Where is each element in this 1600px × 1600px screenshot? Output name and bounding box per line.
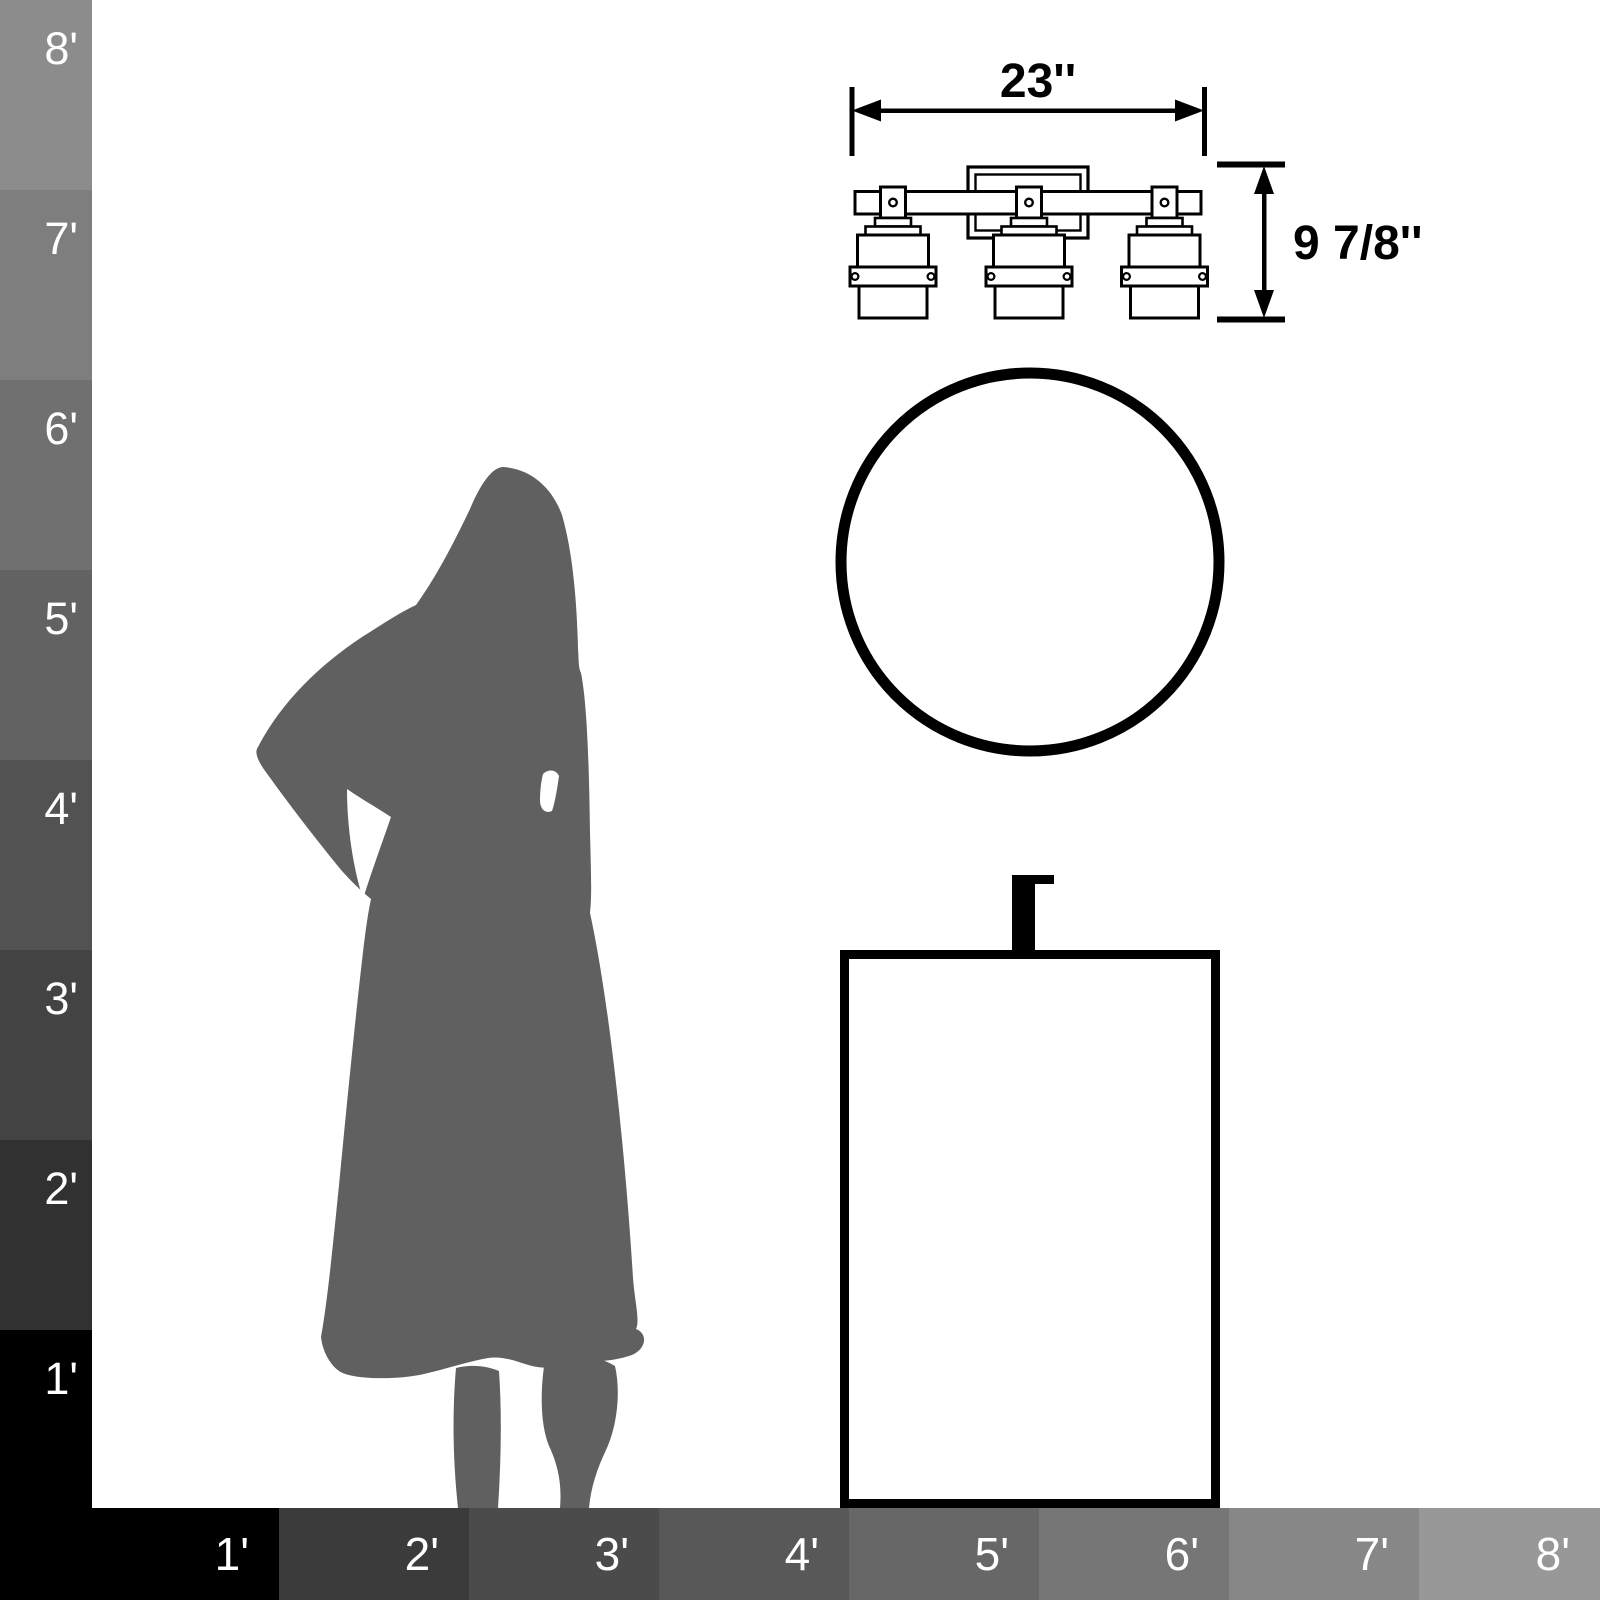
unit-knob-hole [1161, 199, 1169, 207]
cabinet-outline [845, 955, 1216, 1504]
unit-band [1122, 267, 1208, 286]
unit-glass [995, 286, 1063, 318]
width-dim-right-tick [1202, 87, 1207, 156]
arrow-left-icon [852, 100, 881, 122]
unit-band [850, 267, 936, 286]
unit-screw-right [1064, 273, 1071, 280]
width-dimension-label: 23'' [1000, 55, 1076, 108]
woman-left-leg [454, 1366, 501, 1508]
scale-diagram: 8' 7' 6' 5' 4' 3' 2' 1' 1' 2' 3' 4' 5' 6… [0, 0, 1600, 1600]
unit-band [986, 267, 1072, 286]
arrow-right-icon [1175, 100, 1204, 122]
faucet-icon [1012, 875, 1054, 952]
woman-silhouette [256, 467, 644, 1508]
height-dim-arrow-line [1262, 178, 1267, 306]
vanity-cabinet [845, 875, 1216, 1504]
woman-right-leg [542, 1355, 618, 1508]
height-dim-top-tick [1217, 162, 1285, 168]
width-dim-left-tick [850, 87, 855, 156]
unit-knob-hole [889, 199, 897, 207]
unit-screw-left [1123, 273, 1130, 280]
arrow-up-icon [1254, 166, 1274, 194]
unit-shade-body [994, 235, 1065, 267]
unit-screw-left [852, 273, 859, 280]
mirror-circle [841, 373, 1219, 751]
vanity-light-drawing [850, 167, 1208, 318]
height-dim-bottom-tick [1217, 317, 1285, 323]
unit-knob-hole [1025, 199, 1033, 207]
height-dimension: 9 7/8'' [1217, 162, 1423, 323]
unit-screw-right [1199, 273, 1206, 280]
width-dimension: 23'' [850, 55, 1208, 156]
unit-screw-left [988, 273, 995, 280]
diagram-canvas: 23'' 9 7/8'' [0, 0, 1600, 1600]
height-dimension-label: 9 7/8'' [1293, 217, 1423, 270]
unit-glass [1131, 286, 1199, 318]
unit-shade-body [858, 235, 929, 267]
unit-shade-body [1129, 235, 1200, 267]
woman-body [256, 467, 644, 1378]
unit-glass [859, 286, 927, 318]
width-dim-arrow-line [868, 109, 1188, 114]
mirror-outline [841, 373, 1219, 751]
unit-screw-right [928, 273, 935, 280]
arrow-down-icon [1254, 290, 1274, 318]
